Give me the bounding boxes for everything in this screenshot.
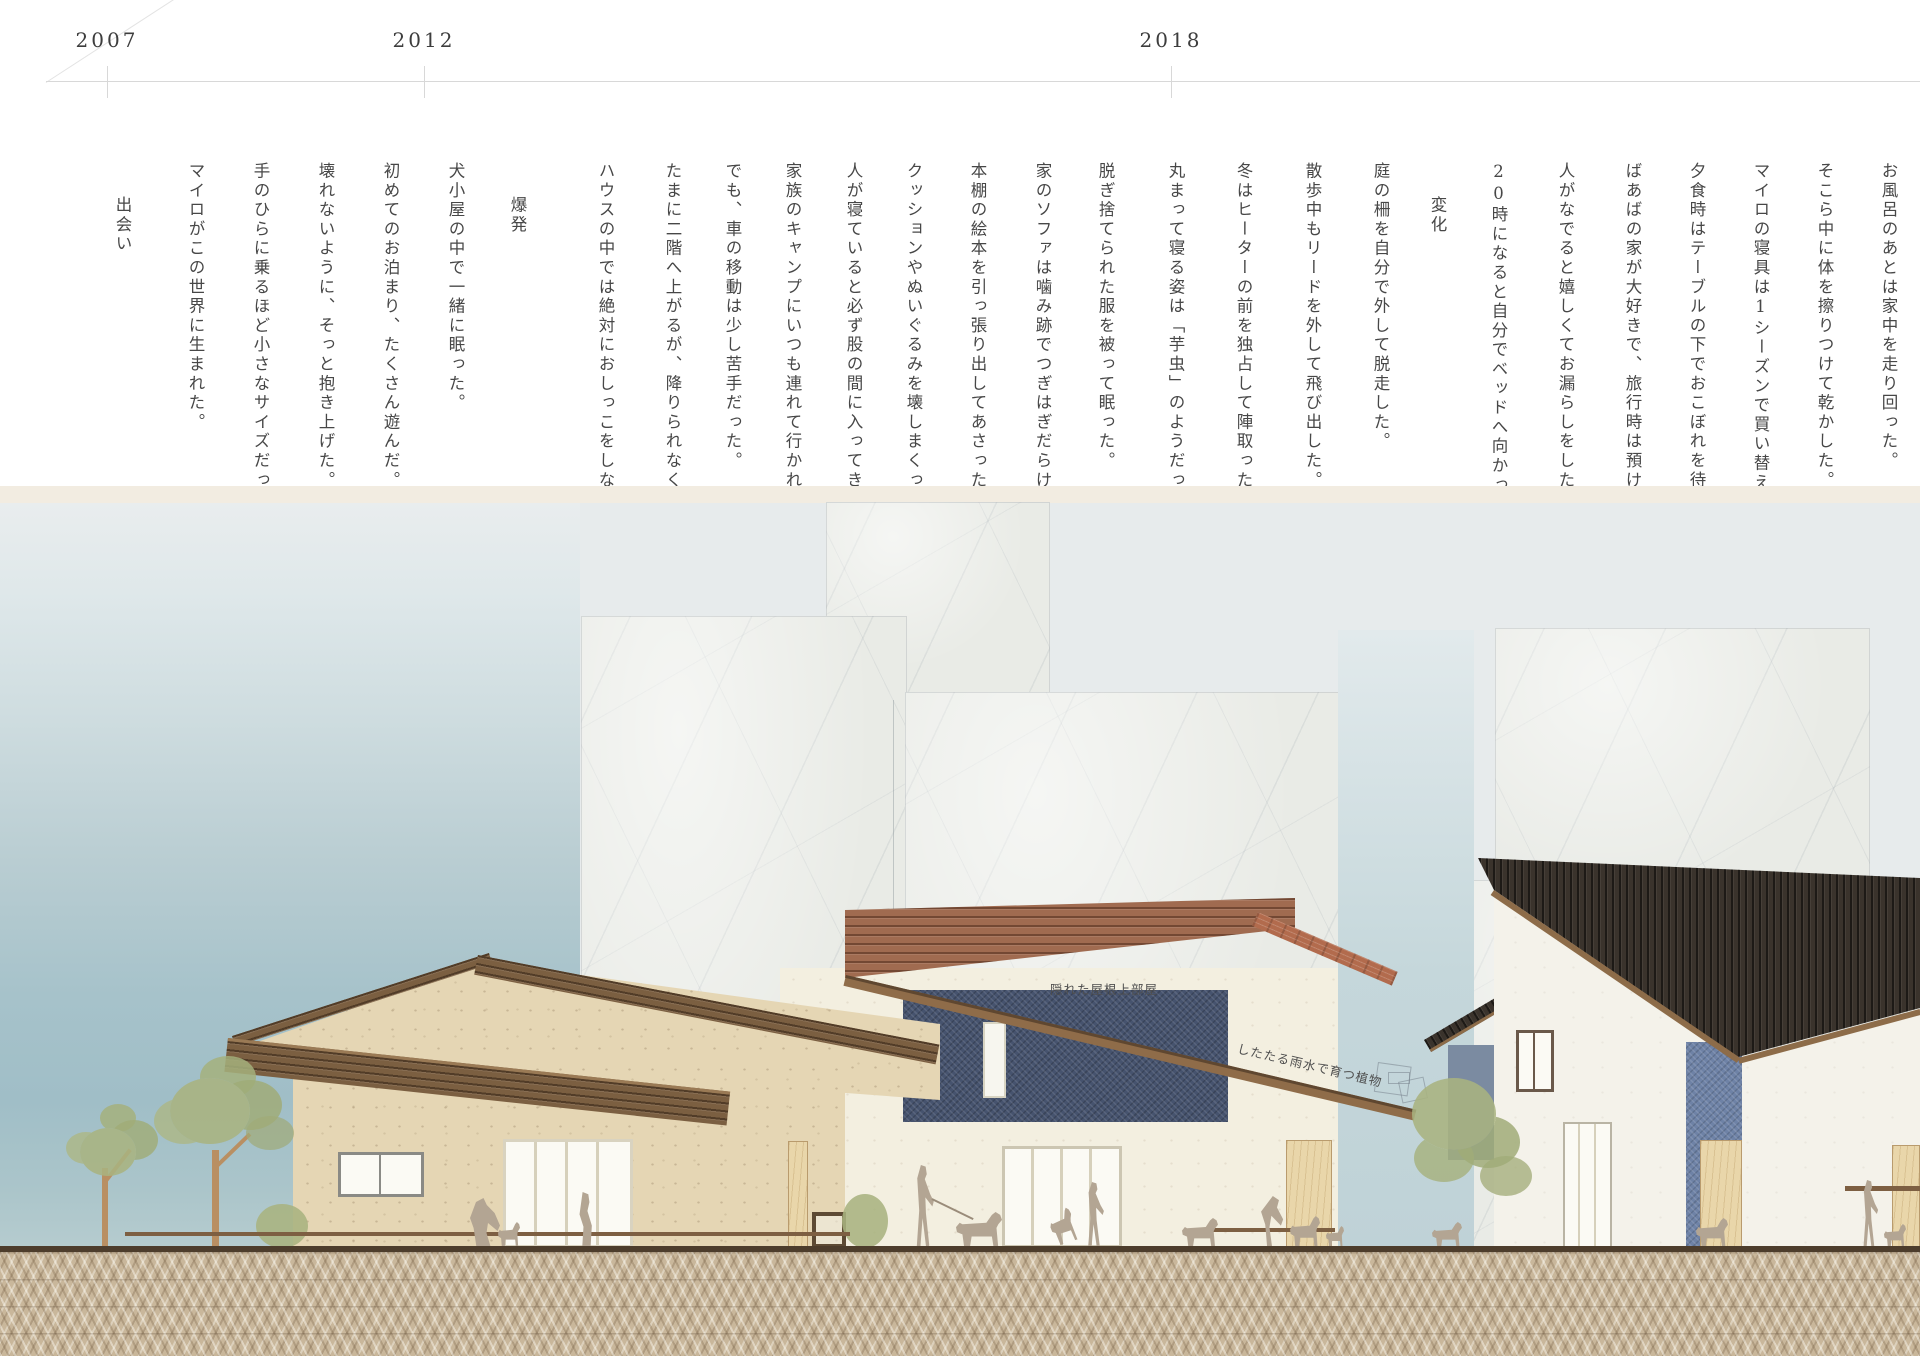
entry-box [812, 1212, 846, 1248]
window-mullion [1533, 1033, 1535, 1089]
story-column: でも、車の移動は少し苦手だった。 [721, 162, 743, 488]
story-column: そこら中に体を擦りつけて乾かした。 [1813, 162, 1835, 488]
story-column: ばあばの家が大好きで、旅行時は預けた [1621, 162, 1643, 488]
planter [1388, 1072, 1410, 1084]
story-column: 手のひらに乗るほど小さなサイズだった [249, 162, 271, 488]
middle-house-slot-window [983, 1022, 1006, 1098]
timeline-tick [107, 66, 108, 98]
presentation-board: 200720122018 出会いマイロがこの世界に生まれた。手のひらに乗るほど小… [0, 0, 1920, 1356]
bush [256, 1204, 308, 1248]
story-column: クッションやぬいぐるみを壊しまくった [902, 162, 924, 488]
window-mullion [1031, 1149, 1034, 1245]
story-column: 脱ぎ捨てられた服を被って眠った。 [1094, 162, 1116, 488]
window-mullion [1594, 1124, 1596, 1246]
window-mullion [534, 1142, 537, 1245]
story-column: マイロがこの世界に生まれた。 [184, 162, 206, 488]
story-text-area: 出会いマイロがこの世界に生まれた。手のひらに乗るほど小さなサイズだった壊れないよ… [0, 110, 1920, 510]
fence-rail [125, 1232, 850, 1236]
story-column: 人がなでると嬉しくてお漏らしをした。 [1554, 162, 1576, 488]
herringbone-pavement [0, 1252, 1920, 1356]
timeline-year-label: 2018 [1126, 28, 1216, 52]
story-column: 本棚の絵本を引っ張り出してあさった。 [966, 162, 988, 488]
label-hidden-roof-room: 隠れた屋根上部屋 [1050, 979, 1158, 998]
story-column: 夕食時はテーブルの下でおこぼれを待っ [1685, 162, 1707, 488]
section-heading: 爆発 [506, 196, 528, 488]
timeline-year-label: 2012 [379, 28, 469, 52]
story-column: 家族のキャンプにいつも連れて行かれた [781, 162, 803, 488]
story-column: ハウスの中では絶対におしっこをしなか [594, 162, 616, 488]
tree-foliage [170, 1078, 250, 1144]
window-mullion [379, 1155, 381, 1194]
story-column: 冬はヒーターの前を独占して陣取った。 [1232, 162, 1254, 488]
tree-foliage [80, 1128, 136, 1176]
timeline-year-label: 2007 [62, 28, 152, 52]
story-column: マイロの寝具は1シーズンで買い替えた [1749, 162, 1771, 488]
right-house-tall-window [1563, 1122, 1612, 1248]
tree-foliage-right [1412, 1078, 1496, 1150]
story-column: 人が寝ていると必ず股の間に入ってきた [842, 162, 864, 488]
section-heading: 出会い [111, 196, 133, 488]
bush [842, 1194, 888, 1248]
story-column: 丸まって寝る姿は「芋虫」のようだった [1164, 162, 1186, 488]
story-column: 壊れないように、そっと抱き上げた。 [314, 162, 336, 488]
story-column: 散歩中もリードを外して飛び出した。 [1301, 162, 1323, 488]
story-column: 庭の柵を自分で外して脱走した。 [1369, 162, 1391, 488]
story-column: お風呂のあとは家中を走り回った。 [1877, 162, 1899, 488]
timeline-tick [1171, 66, 1172, 98]
timeline-years: 200720122018 [0, 0, 1920, 110]
cream-divider-band [0, 486, 1920, 503]
right-house-upper-window [1516, 1030, 1554, 1092]
story-column: 家のソファは噛み跡でつぎはぎだらけだ [1031, 162, 1053, 488]
window-mullion [596, 1142, 599, 1245]
section-heading: 変化 [1426, 196, 1448, 488]
window-mullion [1578, 1124, 1580, 1246]
story-column: 初めてのお泊まり、たくさん遊んだ。 [379, 162, 401, 488]
window-mullion [565, 1142, 568, 1245]
left-house-small-window [338, 1152, 424, 1197]
story-column: たまに二階へ上がるが、降りられなくな [661, 162, 683, 488]
timeline-tick [424, 66, 425, 98]
story-column: 犬小屋の中で一緒に眠った。 [444, 162, 466, 488]
story-column: 20時になると自分でベッドへ向かった。 [1487, 162, 1509, 488]
porch-plank [1845, 1186, 1920, 1191]
